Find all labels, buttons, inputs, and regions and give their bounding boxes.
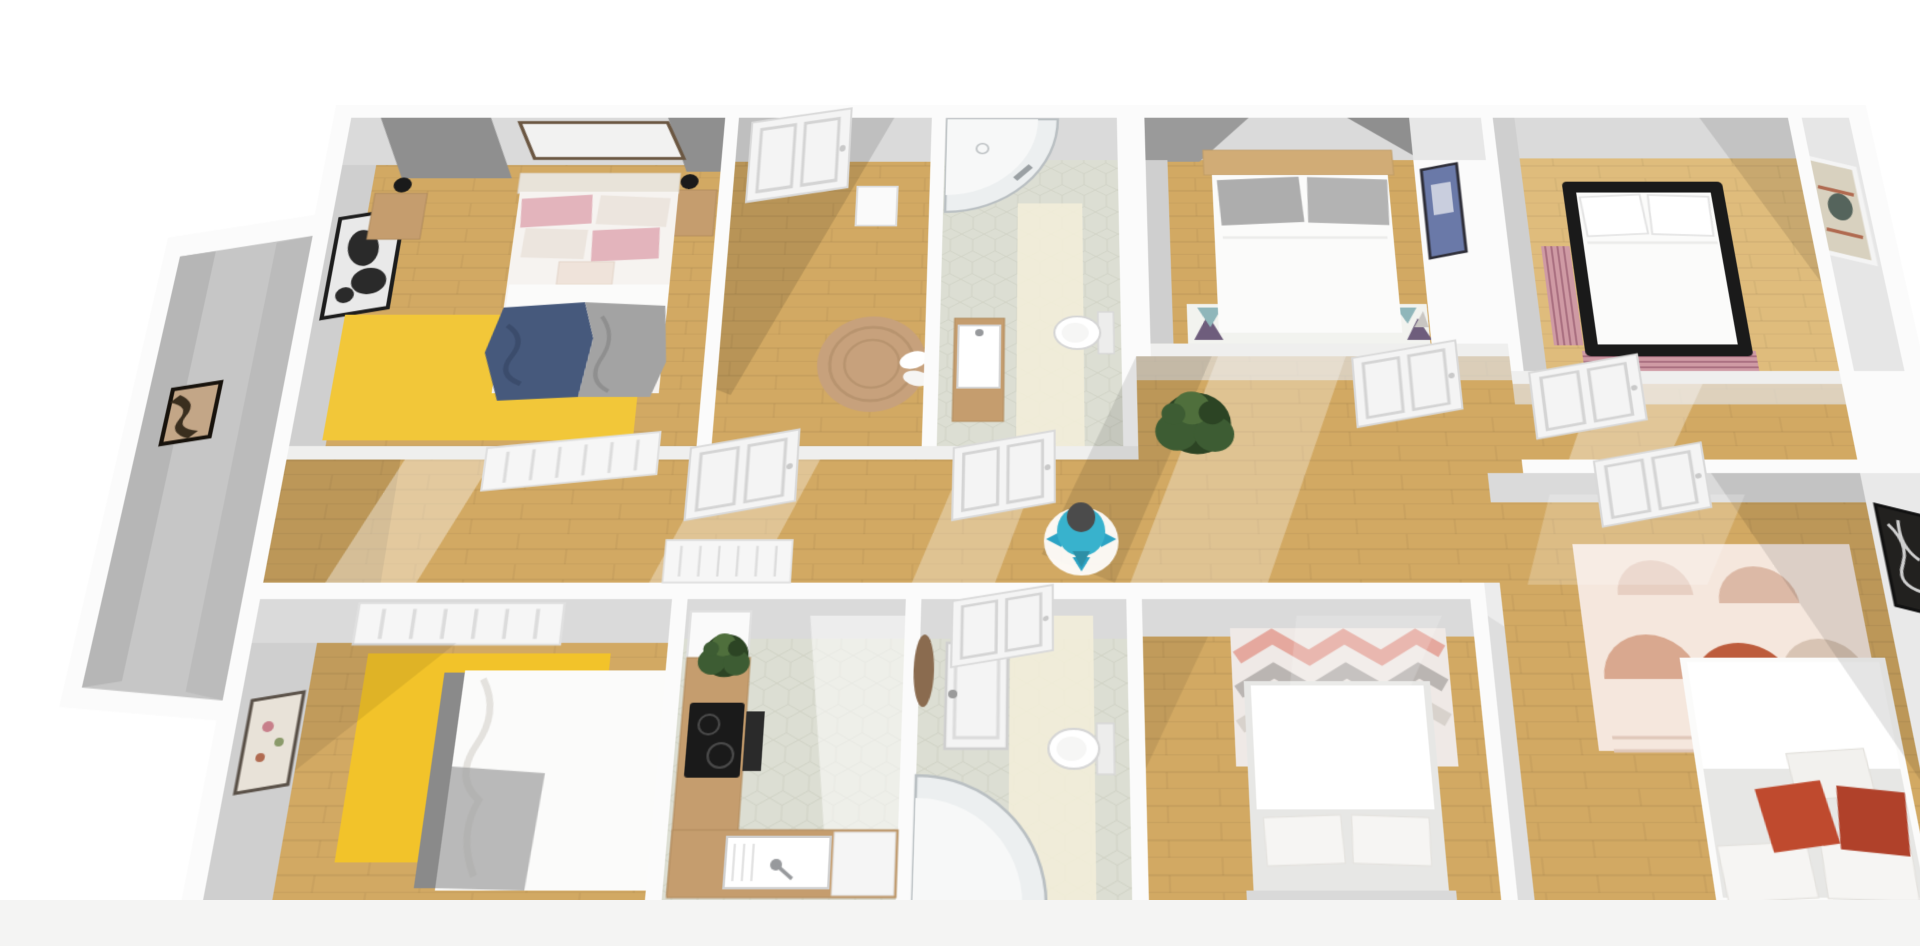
red-cushion xyxy=(1836,786,1910,857)
room-bedroom-bottom-left xyxy=(202,599,672,905)
pillow-gray xyxy=(1307,177,1389,225)
headboard xyxy=(518,173,681,193)
hall-south-wall xyxy=(260,583,1486,599)
pillow xyxy=(1717,842,1818,903)
lumbar-pillow xyxy=(556,262,614,285)
wall-frame xyxy=(515,123,688,159)
room-top-mid-left xyxy=(712,108,940,446)
white-counter-cabinet xyxy=(831,832,895,895)
window-radiator xyxy=(353,603,565,644)
vanity xyxy=(952,318,1004,421)
pillow xyxy=(596,195,671,227)
pillow xyxy=(591,228,660,262)
kitchen-sink xyxy=(723,837,830,888)
headboard-wood xyxy=(1203,150,1394,175)
duvet xyxy=(1218,227,1400,331)
room-door xyxy=(746,108,852,202)
pillow-gray xyxy=(1217,177,1305,226)
room-bedroom-top-left xyxy=(289,118,725,446)
room-bedroom-top-mid-right xyxy=(1144,118,1432,344)
pillow xyxy=(1263,815,1345,866)
pillow xyxy=(1648,195,1714,236)
plan-3d xyxy=(5,105,1920,929)
floor-plan-canvas xyxy=(5,105,1920,929)
room-kitchen xyxy=(661,599,906,905)
cooktop xyxy=(684,703,745,778)
bed-top-right xyxy=(1562,182,1754,357)
pillow xyxy=(1580,195,1648,237)
pillow xyxy=(1352,815,1432,866)
bed-bottom-left xyxy=(413,670,665,890)
hall-radiator-south xyxy=(662,540,792,582)
pillow xyxy=(520,228,588,259)
small-desk xyxy=(856,187,898,226)
footer-strip xyxy=(0,900,1920,946)
pillow xyxy=(520,195,592,228)
floorplan-stage xyxy=(0,0,1920,946)
nightstand-left xyxy=(367,193,427,239)
bed-top-mid-right xyxy=(1203,150,1409,332)
room-bathroom-top xyxy=(937,118,1124,446)
